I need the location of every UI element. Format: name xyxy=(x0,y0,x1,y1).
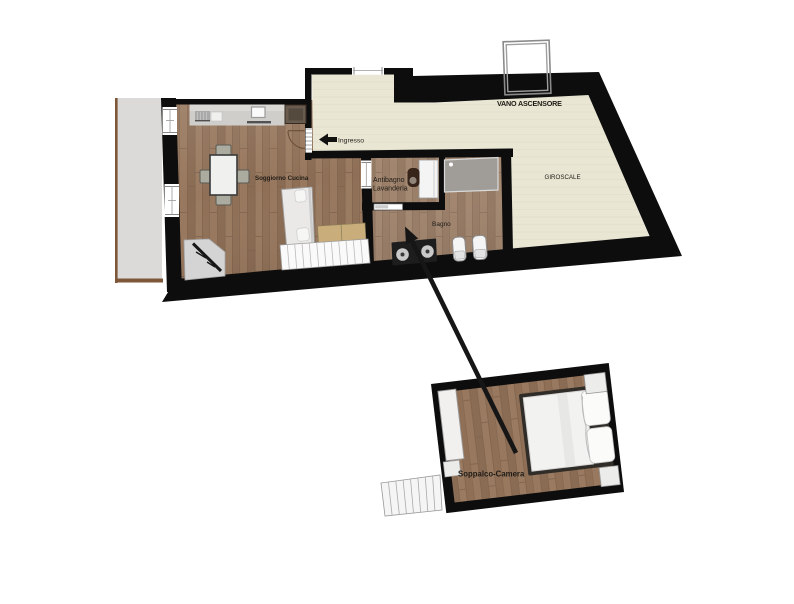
svg-text:Soggiorno Cucina: Soggiorno Cucina xyxy=(255,175,309,182)
svg-text:Bagno: Bagno xyxy=(432,221,451,228)
svg-text:Lavanderia: Lavanderia xyxy=(373,186,408,193)
svg-text:Antibagno: Antibagno xyxy=(373,177,405,184)
svg-text:Soppalco-Camera: Soppalco-Camera xyxy=(458,470,525,479)
svg-text:Ingresso: Ingresso xyxy=(338,138,364,145)
svg-text:GIROSCALE: GIROSCALE xyxy=(545,174,581,181)
svg-text:VANO ASCENSORE: VANO ASCENSORE xyxy=(497,99,562,108)
